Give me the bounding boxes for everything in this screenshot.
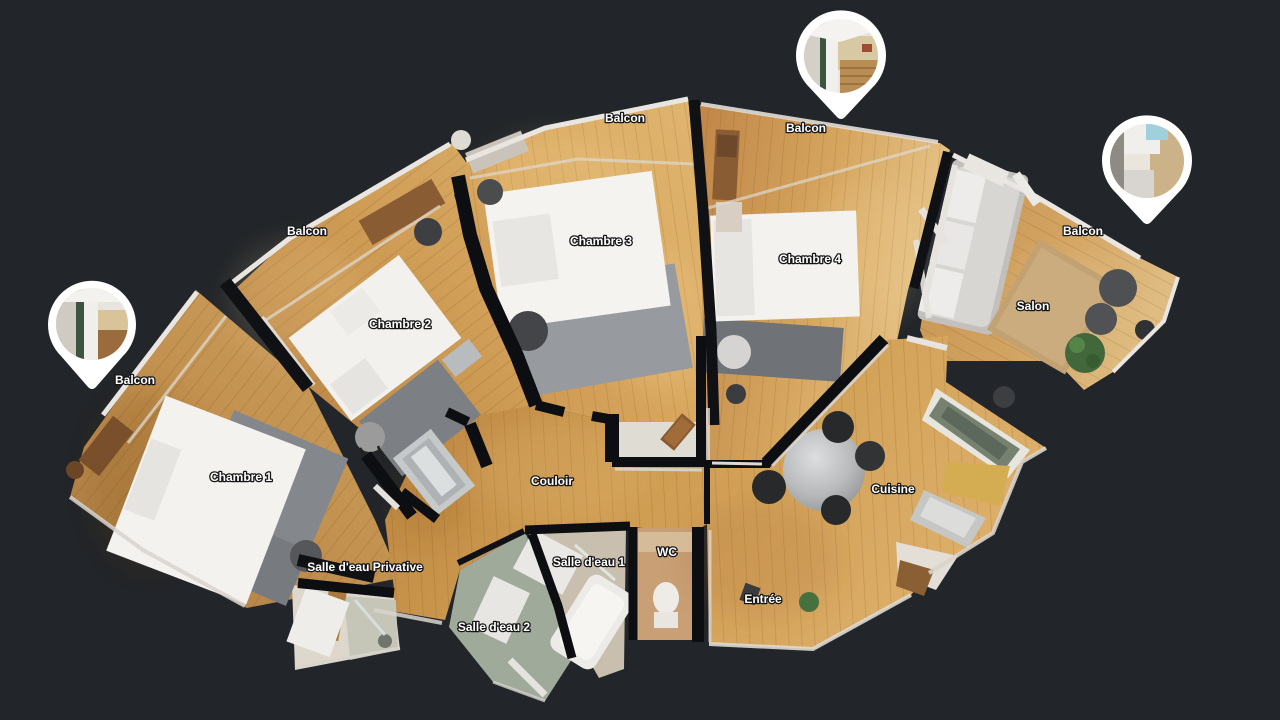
svg-text:Balcon: Balcon [287, 224, 327, 238]
svg-text:Salon: Salon [1017, 299, 1050, 313]
svg-text:Balcon: Balcon [1063, 224, 1103, 238]
svg-text:Chambre 2: Chambre 2 [369, 317, 431, 331]
svg-text:Balcon: Balcon [786, 121, 826, 135]
svg-text:Salle d'eau 2: Salle d'eau 2 [458, 620, 531, 634]
svg-text:Salle d'eau 1: Salle d'eau 1 [553, 555, 626, 569]
svg-text:Entrée: Entrée [744, 592, 782, 606]
svg-text:Chambre 3: Chambre 3 [570, 234, 632, 248]
svg-text:Chambre 1: Chambre 1 [210, 470, 272, 484]
svg-text:Chambre 4: Chambre 4 [779, 252, 841, 266]
svg-text:Cuisine: Cuisine [871, 482, 915, 496]
svg-text:Balcon: Balcon [605, 111, 645, 125]
svg-text:Balcon: Balcon [115, 373, 155, 387]
svg-text:WC: WC [657, 545, 677, 559]
svg-text:Salle d'eau Privative: Salle d'eau Privative [307, 560, 423, 574]
svg-text:Couloir: Couloir [531, 474, 573, 488]
